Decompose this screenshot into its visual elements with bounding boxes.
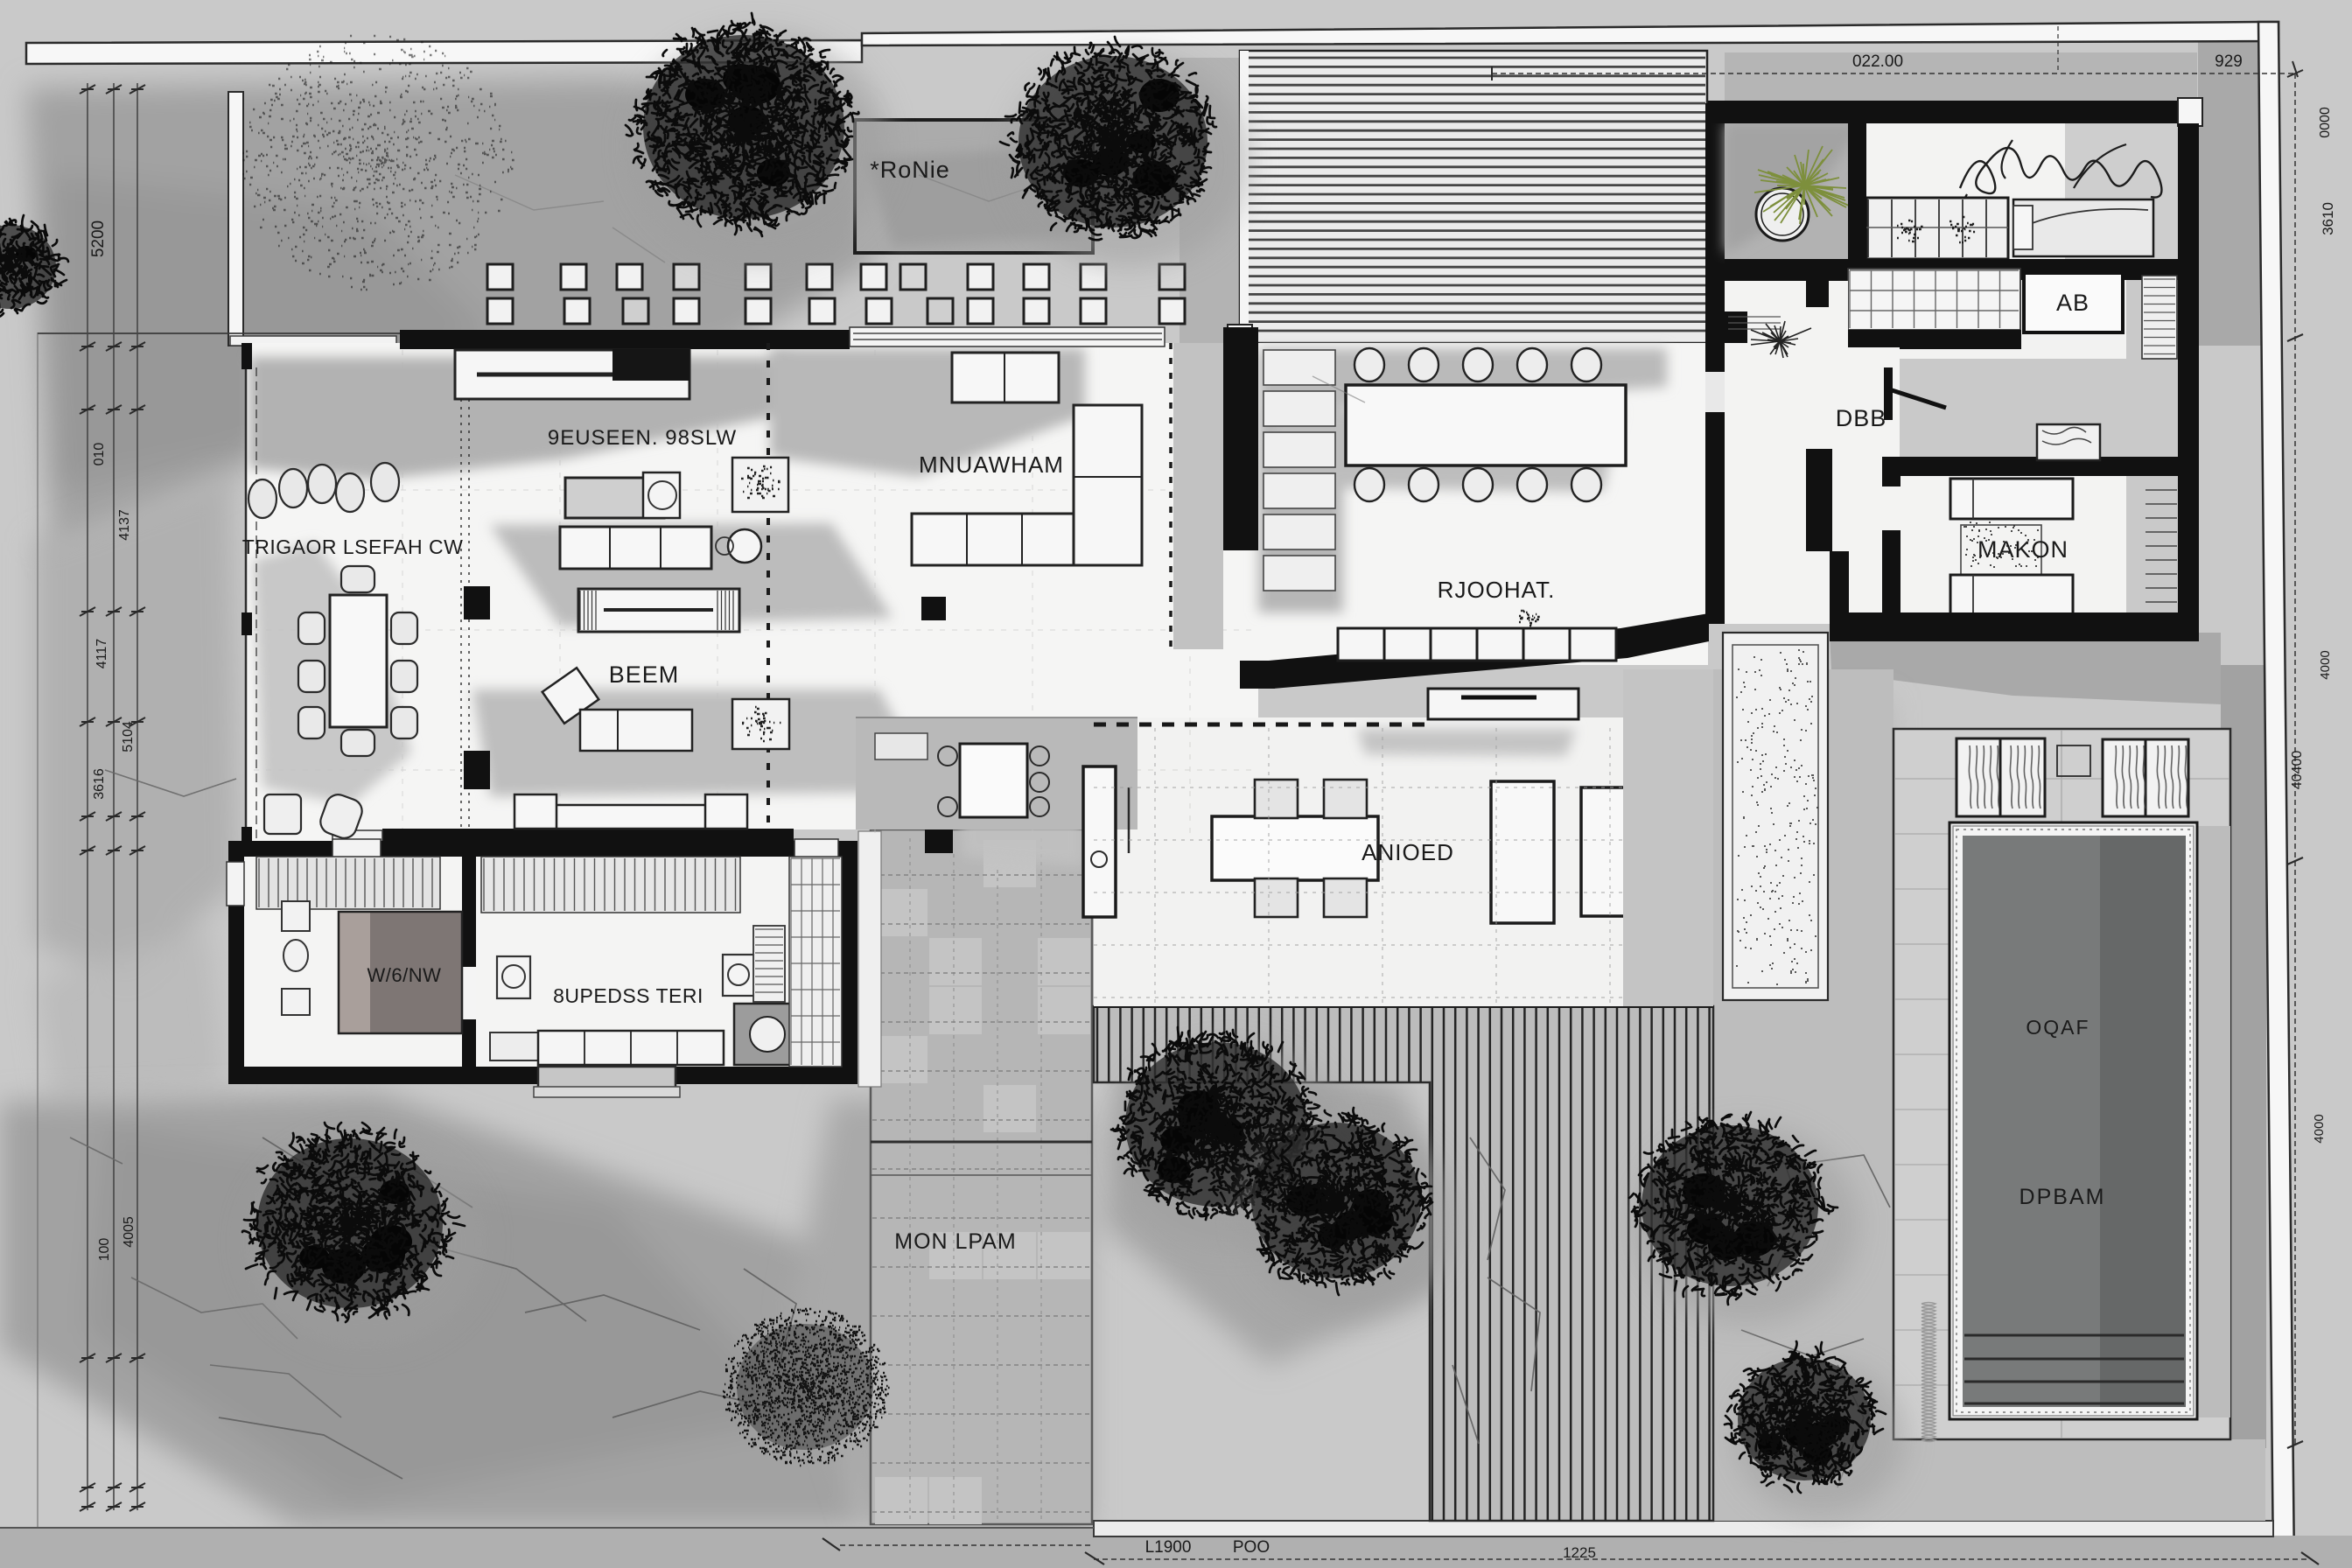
svg-text:5200: 5200 [89, 220, 108, 257]
svg-text:MON LPAM: MON LPAM [894, 1229, 1017, 1254]
svg-text:929: 929 [2215, 52, 2243, 71]
svg-text:W/6/NW: W/6/NW [367, 964, 442, 986]
svg-text:022.00: 022.00 [1852, 52, 1903, 71]
svg-text:4000: 4000 [2318, 650, 2333, 679]
svg-text:5104: 5104 [121, 721, 136, 752]
svg-text:4005: 4005 [122, 1216, 136, 1248]
svg-text:POO: POO [1233, 1538, 1270, 1557]
svg-text:3616: 3616 [92, 768, 107, 800]
svg-text:MAKON: MAKON [1977, 536, 2068, 563]
svg-text:100: 100 [97, 1238, 112, 1262]
svg-text:DPBAM: DPBAM [2019, 1185, 2106, 1209]
svg-text:40400: 40400 [2290, 751, 2305, 790]
svg-text:AB: AB [2056, 290, 2089, 316]
svg-text:L1900: L1900 [1145, 1538, 1192, 1557]
svg-text:RJOOHAT.: RJOOHAT. [1438, 577, 1556, 603]
svg-text:DBB: DBB [1836, 405, 1887, 431]
svg-text:TRIGAOR LSEFAH CW: TRIGAOR LSEFAH CW [242, 535, 464, 558]
svg-text:010: 010 [92, 443, 107, 466]
svg-text:4117: 4117 [94, 639, 109, 669]
svg-text:4000: 4000 [2312, 1114, 2327, 1143]
svg-text:9EUSEEN. 98SLW: 9EUSEEN. 98SLW [548, 426, 737, 450]
svg-text:*RoNie: *RoNie [870, 157, 950, 183]
svg-text:ANIOED: ANIOED [1361, 839, 1454, 865]
svg-text:0000: 0000 [2318, 107, 2333, 138]
svg-text:OQAF: OQAF [2026, 1016, 2089, 1039]
svg-text:4137: 4137 [117, 509, 132, 541]
svg-text:BEEM: BEEM [609, 661, 680, 688]
svg-text:MNUAWHAM: MNUAWHAM [919, 451, 1064, 478]
svg-text:1225: 1225 [1563, 1544, 1596, 1561]
svg-text:8UPEDSS TERI: 8UPEDSS TERI [553, 984, 703, 1007]
svg-text:3610: 3610 [2320, 202, 2336, 235]
